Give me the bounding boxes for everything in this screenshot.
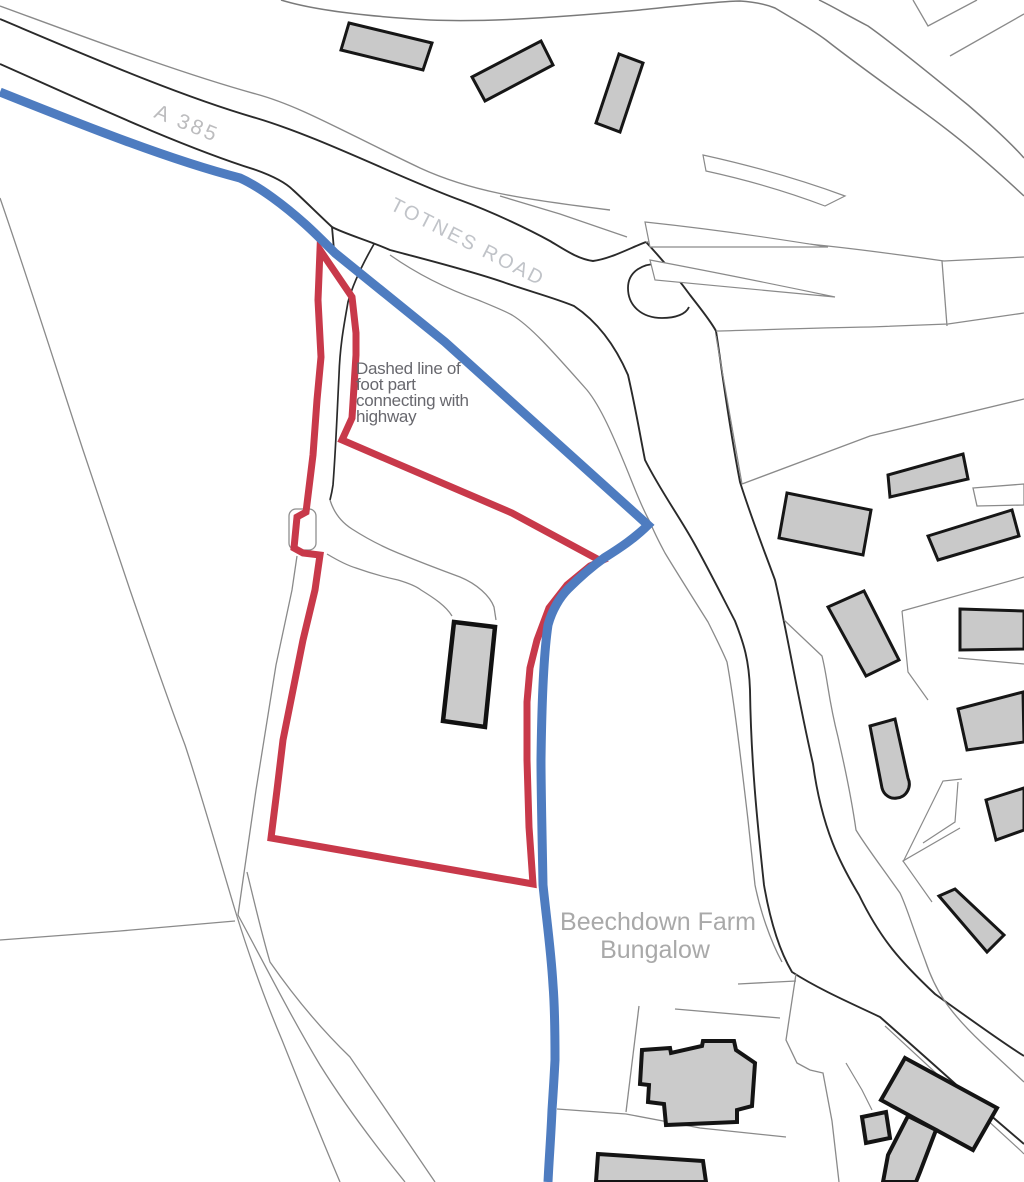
svg-text:highway: highway — [356, 407, 417, 426]
svg-text:Beechdown Farm: Beechdown Farm — [560, 908, 756, 936]
svg-text:Bungalow: Bungalow — [600, 936, 711, 964]
